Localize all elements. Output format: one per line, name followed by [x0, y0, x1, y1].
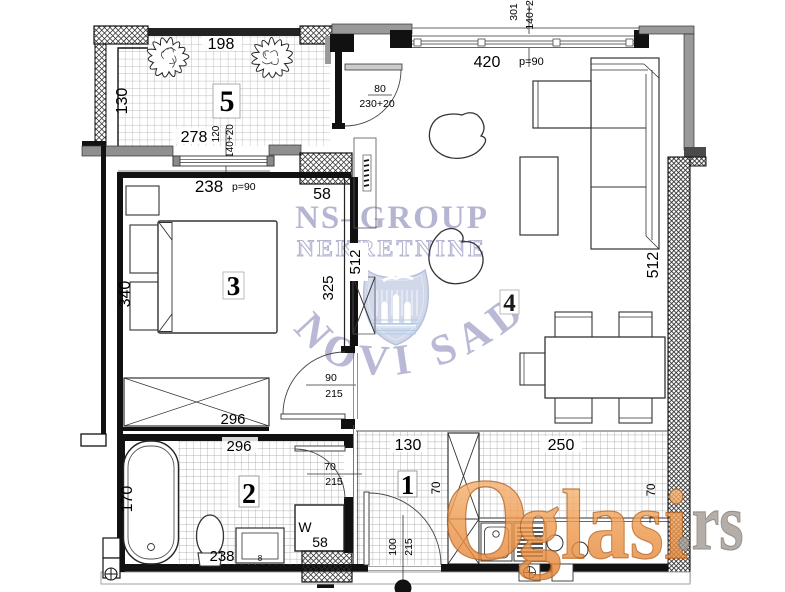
svg-text:215: 215	[403, 538, 415, 556]
svg-text:70: 70	[324, 461, 336, 473]
svg-text:420: 420	[474, 54, 501, 71]
svg-text:80: 80	[374, 83, 386, 95]
svg-text:1: 1	[401, 470, 415, 500]
svg-text:512: 512	[347, 249, 364, 274]
svg-text:p=90: p=90	[232, 181, 256, 193]
svg-text:170: 170	[119, 486, 136, 513]
svg-text:100: 100	[387, 538, 399, 556]
svg-text:325: 325	[320, 275, 337, 300]
svg-text:glasi: glasi	[517, 470, 688, 580]
svg-text:NS–GROUP: NS–GROUP	[295, 200, 489, 236]
svg-text:215: 215	[325, 476, 343, 488]
svg-text:3: 3	[227, 271, 241, 301]
svg-text:512: 512	[645, 252, 662, 279]
svg-text:.rs: .rs	[676, 478, 744, 567]
svg-text:90: 90	[325, 372, 337, 384]
svg-text:140+20: 140+20	[524, 0, 536, 30]
svg-text:130: 130	[395, 437, 422, 454]
svg-text:W: W	[298, 519, 312, 535]
svg-text:296: 296	[220, 411, 245, 428]
svg-text:4: 4	[503, 290, 516, 317]
svg-text:140+20: 140+20	[225, 124, 236, 158]
svg-text:130: 130	[114, 88, 131, 115]
svg-text:58: 58	[313, 186, 331, 203]
svg-text:340: 340	[117, 281, 134, 308]
svg-text:238: 238	[195, 177, 223, 196]
svg-text:198: 198	[208, 36, 235, 53]
svg-text:296: 296	[226, 438, 251, 455]
svg-text:58: 58	[312, 534, 328, 550]
svg-text:215: 215	[325, 388, 343, 400]
svg-text:NEKRETNINE: NEKRETNINE	[297, 236, 487, 262]
svg-text:2: 2	[242, 479, 256, 510]
svg-text:5: 5	[220, 85, 235, 118]
svg-text:230+20: 230+20	[359, 98, 394, 110]
svg-text:238: 238	[209, 548, 234, 565]
svg-text:301: 301	[508, 3, 520, 21]
svg-text:O: O	[442, 453, 529, 584]
svg-text:278: 278	[181, 129, 208, 146]
svg-text:p=90: p=90	[519, 56, 544, 68]
svg-text:8: 8	[258, 554, 263, 563]
svg-text:250: 250	[548, 437, 575, 454]
svg-text:120: 120	[211, 125, 222, 142]
